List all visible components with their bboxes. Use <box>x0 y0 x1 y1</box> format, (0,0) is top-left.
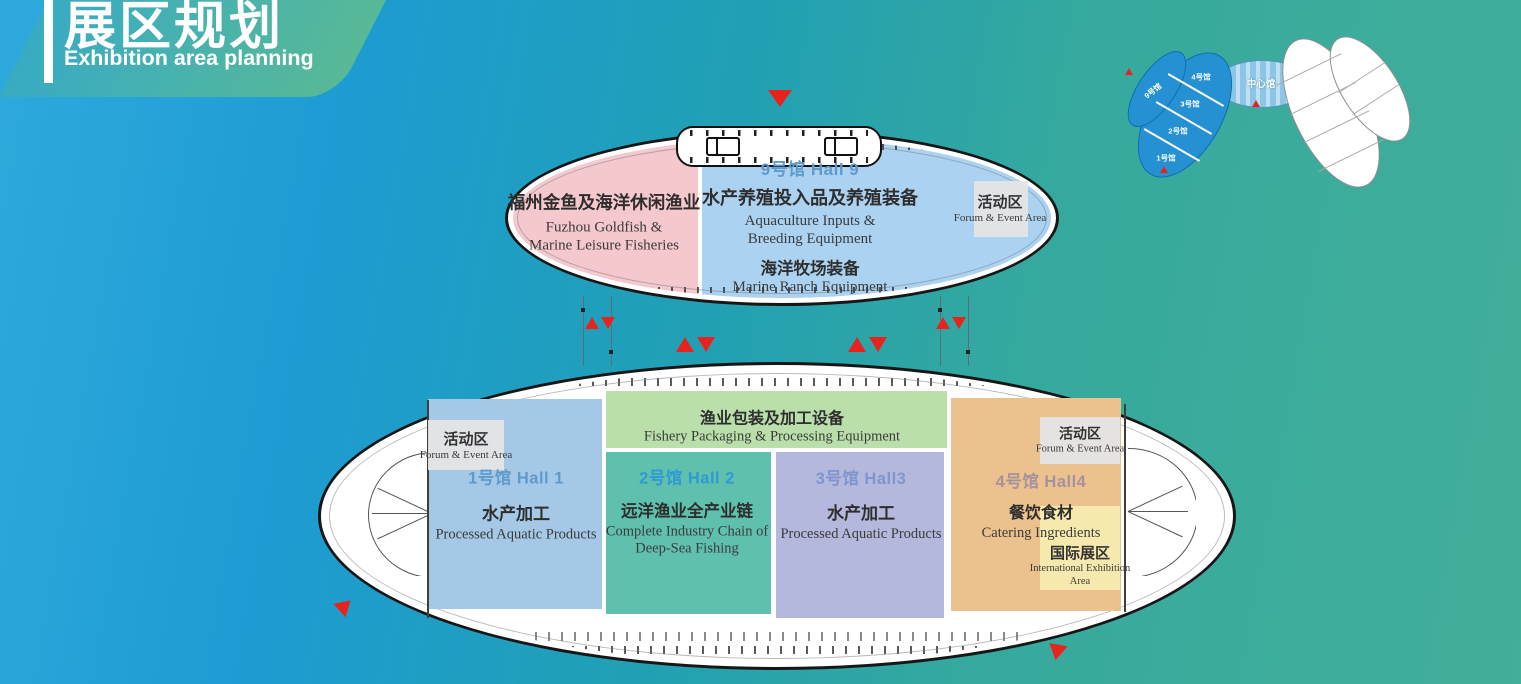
event-area-en: Forum & Event Area <box>954 212 1047 225</box>
minimap-hall2-label: 2号馆 <box>1168 126 1187 137</box>
hall2-theme-en-1: Complete Industry Chain of <box>606 523 768 540</box>
hall4-theme-en: Catering Ingredients <box>982 525 1101 542</box>
hall4-event-area-text: 活动区 Forum & Event Area <box>1036 424 1124 457</box>
goldfish-zone-title: 福州金鱼及海洋休闲渔业 <box>508 189 701 214</box>
hall3-theme-en: Processed Aquatic Products <box>780 526 941 543</box>
minimap-hall4-label: 4号馆 <box>1191 72 1210 83</box>
packaging-en: Fishery Packaging & Processing Equipment <box>644 428 900 445</box>
gate-arrow-down-icon <box>869 337 887 352</box>
corridor-node <box>938 308 942 312</box>
corridor-node <box>609 350 613 354</box>
hall9-theme-en-1: Aquaculture Inputs & <box>745 213 876 231</box>
minimap-center-hall-label: 中心馆 <box>1247 76 1276 90</box>
event-area-zh: 活动区 <box>1059 424 1101 444</box>
gate-arrow-up-icon <box>676 337 694 352</box>
event-area-en: Forum & Event Area <box>1036 444 1124 457</box>
hall2-theme-zh: 远洋渔业全产业链 <box>621 497 753 521</box>
booth-detail-strip <box>690 130 868 136</box>
gate-arrow-up-icon <box>936 317 950 329</box>
goldfish-zone-text: 福州金鱼及海洋休闲渔业 Fuzhou Goldfish & Marine Lei… <box>508 189 701 254</box>
hall1-label: 1号馆 Hall 1 <box>468 464 564 488</box>
corridor-line <box>611 296 612 366</box>
gate-arrow-up-icon <box>585 317 599 329</box>
gate-arrow-down-icon <box>697 337 715 352</box>
event-area-zh: 活动区 <box>977 191 1022 212</box>
minimap-hall1-label: 1号馆 <box>1156 153 1175 164</box>
hall9-theme-zh: 水产养殖投入品及养殖装备 <box>702 184 918 210</box>
hall1-theme-zh: 水产加工 <box>482 499 550 524</box>
event-area-en: Forum & Event Area <box>420 449 513 462</box>
international-zone-text: 国际展区 International Exhibition Area <box>1030 542 1131 588</box>
hall3-theme-zh: 水产加工 <box>827 499 895 524</box>
corridor-line <box>583 296 584 366</box>
vehicle-booth-icon <box>824 137 858 156</box>
hall2-label: 2号馆 Hall 2 <box>639 464 735 488</box>
international-en-2: Area <box>1070 576 1090 589</box>
corridor-line <box>968 296 969 366</box>
hall9-theme-en-2: Breeding Equipment <box>748 231 873 249</box>
gate-arrow-down-icon <box>952 317 966 329</box>
minimap-marker-center-icon <box>1252 100 1260 107</box>
hall1-text: 1号馆 Hall 1 水产加工 Processed Aquatic Produc… <box>435 464 596 543</box>
gate-arrow-down-icon <box>601 317 615 329</box>
entrance-arrow-west-icon <box>333 594 356 617</box>
hall4-label: 4号馆 Hall4 <box>996 468 1087 492</box>
packaging-band-text: 渔业包装及加工设备 Fishery Packaging & Processing… <box>644 404 900 445</box>
international-en-1: International Exhibition <box>1030 563 1131 576</box>
minimap-marker-south-icon <box>1160 166 1168 173</box>
entrance-arrow-top-icon <box>768 90 792 107</box>
hall9-text: 9号馆 Hall 9 水产养殖投入品及养殖装备 Aquaculture Inpu… <box>702 155 918 297</box>
hall9-theme2-zh: 海洋牧场装备 <box>761 255 860 279</box>
hall1-theme-en: Processed Aquatic Products <box>435 526 596 543</box>
international-zh: 国际展区 <box>1050 542 1110 563</box>
exhibition-planning-poster: 展区规划 Exhibition area planning 中心馆 4号馆 3号… <box>0 0 1521 684</box>
hall2-theme-en-2: Deep-Sea Fishing <box>635 541 739 558</box>
hall9-theme2-en: Marine Ranch Equipment <box>733 279 888 297</box>
fan-spoke <box>1128 511 1188 512</box>
corridor-node <box>581 308 585 312</box>
minimap-hall3-label: 3号馆 <box>1180 99 1199 110</box>
event-area-zh: 活动区 <box>443 428 488 449</box>
page-subtitle: Exhibition area planning <box>64 46 314 71</box>
goldfish-zone-subtitle-1: Fuzhou Goldfish & <box>546 219 663 237</box>
hall4-text: 4号馆 Hall4 餐饮食材 Catering Ingredients <box>982 468 1101 542</box>
goldfish-zone-subtitle-2: Marine Leisure Fisheries <box>529 237 679 255</box>
entrance-arrow-southeast-icon <box>1049 638 1070 660</box>
hall9-event-area-text: 活动区 Forum & Event Area <box>954 191 1047 225</box>
gate-arrow-up-icon <box>848 337 866 352</box>
hall3-label: 3号馆 Hall3 <box>816 465 907 489</box>
hall3-text: 3号馆 Hall3 水产加工 Processed Aquatic Product… <box>780 465 941 543</box>
minimap-marker-west-icon <box>1125 68 1133 75</box>
header-accent-bar <box>44 0 53 83</box>
hall4-theme-zh: 餐饮食材 <box>1009 499 1073 523</box>
hall9-label: 9号馆 Hall 9 <box>761 155 860 180</box>
fan-spoke <box>372 513 432 514</box>
hall1-event-area-text: 活动区 Forum & Event Area <box>420 428 513 462</box>
corridor-line <box>940 296 941 366</box>
packaging-zh: 渔业包装及加工设备 <box>700 404 844 428</box>
hall2-text: 2号馆 Hall 2 远洋渔业全产业链 Complete Industry Ch… <box>606 464 768 557</box>
vehicle-booth-icon <box>706 137 740 156</box>
corridor-node <box>966 350 970 354</box>
